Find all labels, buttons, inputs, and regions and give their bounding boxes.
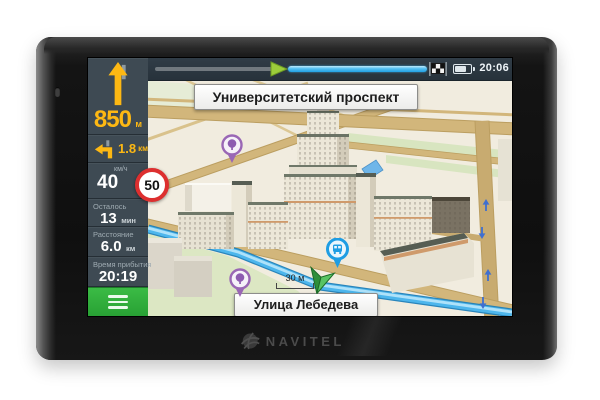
street-name: Университетский проспект [213,89,400,105]
stat-distance[interactable]: Расстояние 6.0 км [88,227,148,257]
park-tree-pin[interactable] [229,268,251,298]
stat-value: 6.0 [101,238,122,255]
speed-value: 40 [97,172,118,194]
route-progress-remaining-segment [288,66,427,72]
navitel-globe-icon [240,331,260,351]
maneuver-distance-unit: м [135,119,142,129]
brand-logo: NAVITEL [240,331,345,351]
second-maneuver-panel[interactable]: 1.8 км [88,135,148,163]
maneuver-distance-value: 850 [94,106,131,133]
map-column: 20:06 [148,58,512,316]
menu-button[interactable] [88,287,148,316]
stat-unit: км [126,244,135,253]
second-maneuver-unit: км [138,144,148,153]
second-maneuver-distance: 1.8 [118,141,136,156]
stat-arrival-time[interactable]: Время прибытия 20:19 [88,257,148,287]
device-right-edge [543,37,557,360]
stat-value: 20:19 [99,268,137,285]
sidebar: 850 м 1.8 км км/ч 40 50 Осталось 13 мин [88,58,148,316]
screen: 850 м 1.8 км км/ч 40 50 Осталось 13 мин [88,58,512,316]
stat-value: 13 [100,210,117,227]
clock-time: 20:06 [479,62,509,74]
stat-remaining-time[interactable]: Осталось 13 мин [88,199,148,227]
battery-icon [453,64,472,74]
hamburger-menu-icon [108,301,128,304]
hamburger-menu-icon [108,295,128,298]
device-left-edge [36,37,56,360]
maneuver-distance: 850 м [94,106,142,134]
hamburger-menu-icon [108,306,128,309]
park-tree-pin[interactable] [221,134,243,164]
device-frame: 850 м 1.8 км км/ч 40 50 Осталось 13 мин [36,37,557,360]
turn-left-arrow-icon [94,137,113,160]
speed-panel[interactable]: км/ч 40 50 [88,163,148,200]
stat-unit: мин [121,216,136,225]
street-sign-bottom: Улица Лебедева [234,293,378,316]
status-bar: 20:06 [148,58,512,81]
route-progress-done-segment [155,67,272,71]
checkered-finish-flag-icon [429,62,447,76]
transport-stop-pin[interactable] [326,238,349,269]
map-canvas[interactable]: Университетский проспект Улица Лебедева … [148,81,512,316]
straight-ahead-arrow-icon [100,62,136,108]
street-sign-top: Университетский проспект [194,84,418,110]
street-name: Улица Лебедева [254,297,358,312]
device-top-edge [44,37,549,54]
brand-name: NAVITEL [266,334,345,349]
speed-limit-value: 50 [144,177,160,193]
speed-limit-sign: 50 [135,168,169,202]
next-maneuver-panel[interactable]: 850 м [88,58,148,135]
route-progress-position-arrow-icon [270,61,288,77]
device-side-button[interactable] [55,87,60,97]
